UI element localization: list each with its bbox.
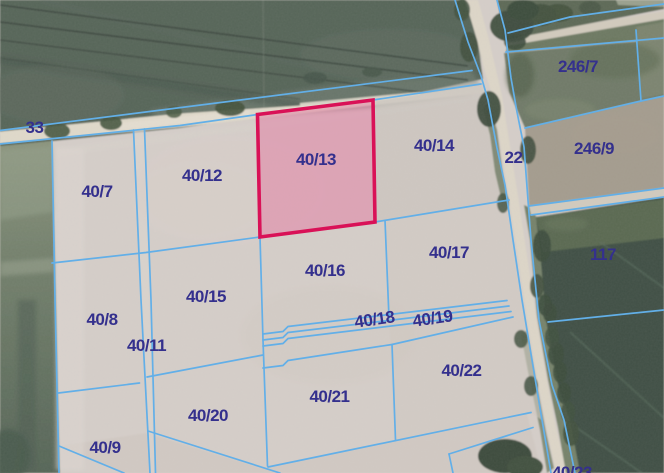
svg-text:40/14: 40/14 <box>414 136 455 155</box>
svg-text:40/22: 40/22 <box>441 361 481 380</box>
svg-text:40/12: 40/12 <box>182 166 222 185</box>
svg-text:117: 117 <box>590 245 616 264</box>
svg-text:40/20: 40/20 <box>188 406 228 425</box>
svg-text:40/16: 40/16 <box>305 261 345 280</box>
svg-text:40/23: 40/23 <box>552 463 592 473</box>
svg-text:40/17: 40/17 <box>429 243 469 262</box>
svg-text:22: 22 <box>505 148 523 167</box>
svg-text:40/21: 40/21 <box>309 387 349 406</box>
svg-text:33: 33 <box>26 118 44 137</box>
svg-text:40/7: 40/7 <box>81 182 112 201</box>
svg-text:40/11: 40/11 <box>127 336 166 355</box>
svg-text:40/9: 40/9 <box>89 438 120 457</box>
svg-text:40/8: 40/8 <box>86 310 117 329</box>
svg-text:246/9: 246/9 <box>574 139 614 158</box>
svg-text:246/7: 246/7 <box>558 57 598 76</box>
svg-text:40/15: 40/15 <box>186 287 226 306</box>
svg-text:40/13: 40/13 <box>296 150 336 169</box>
